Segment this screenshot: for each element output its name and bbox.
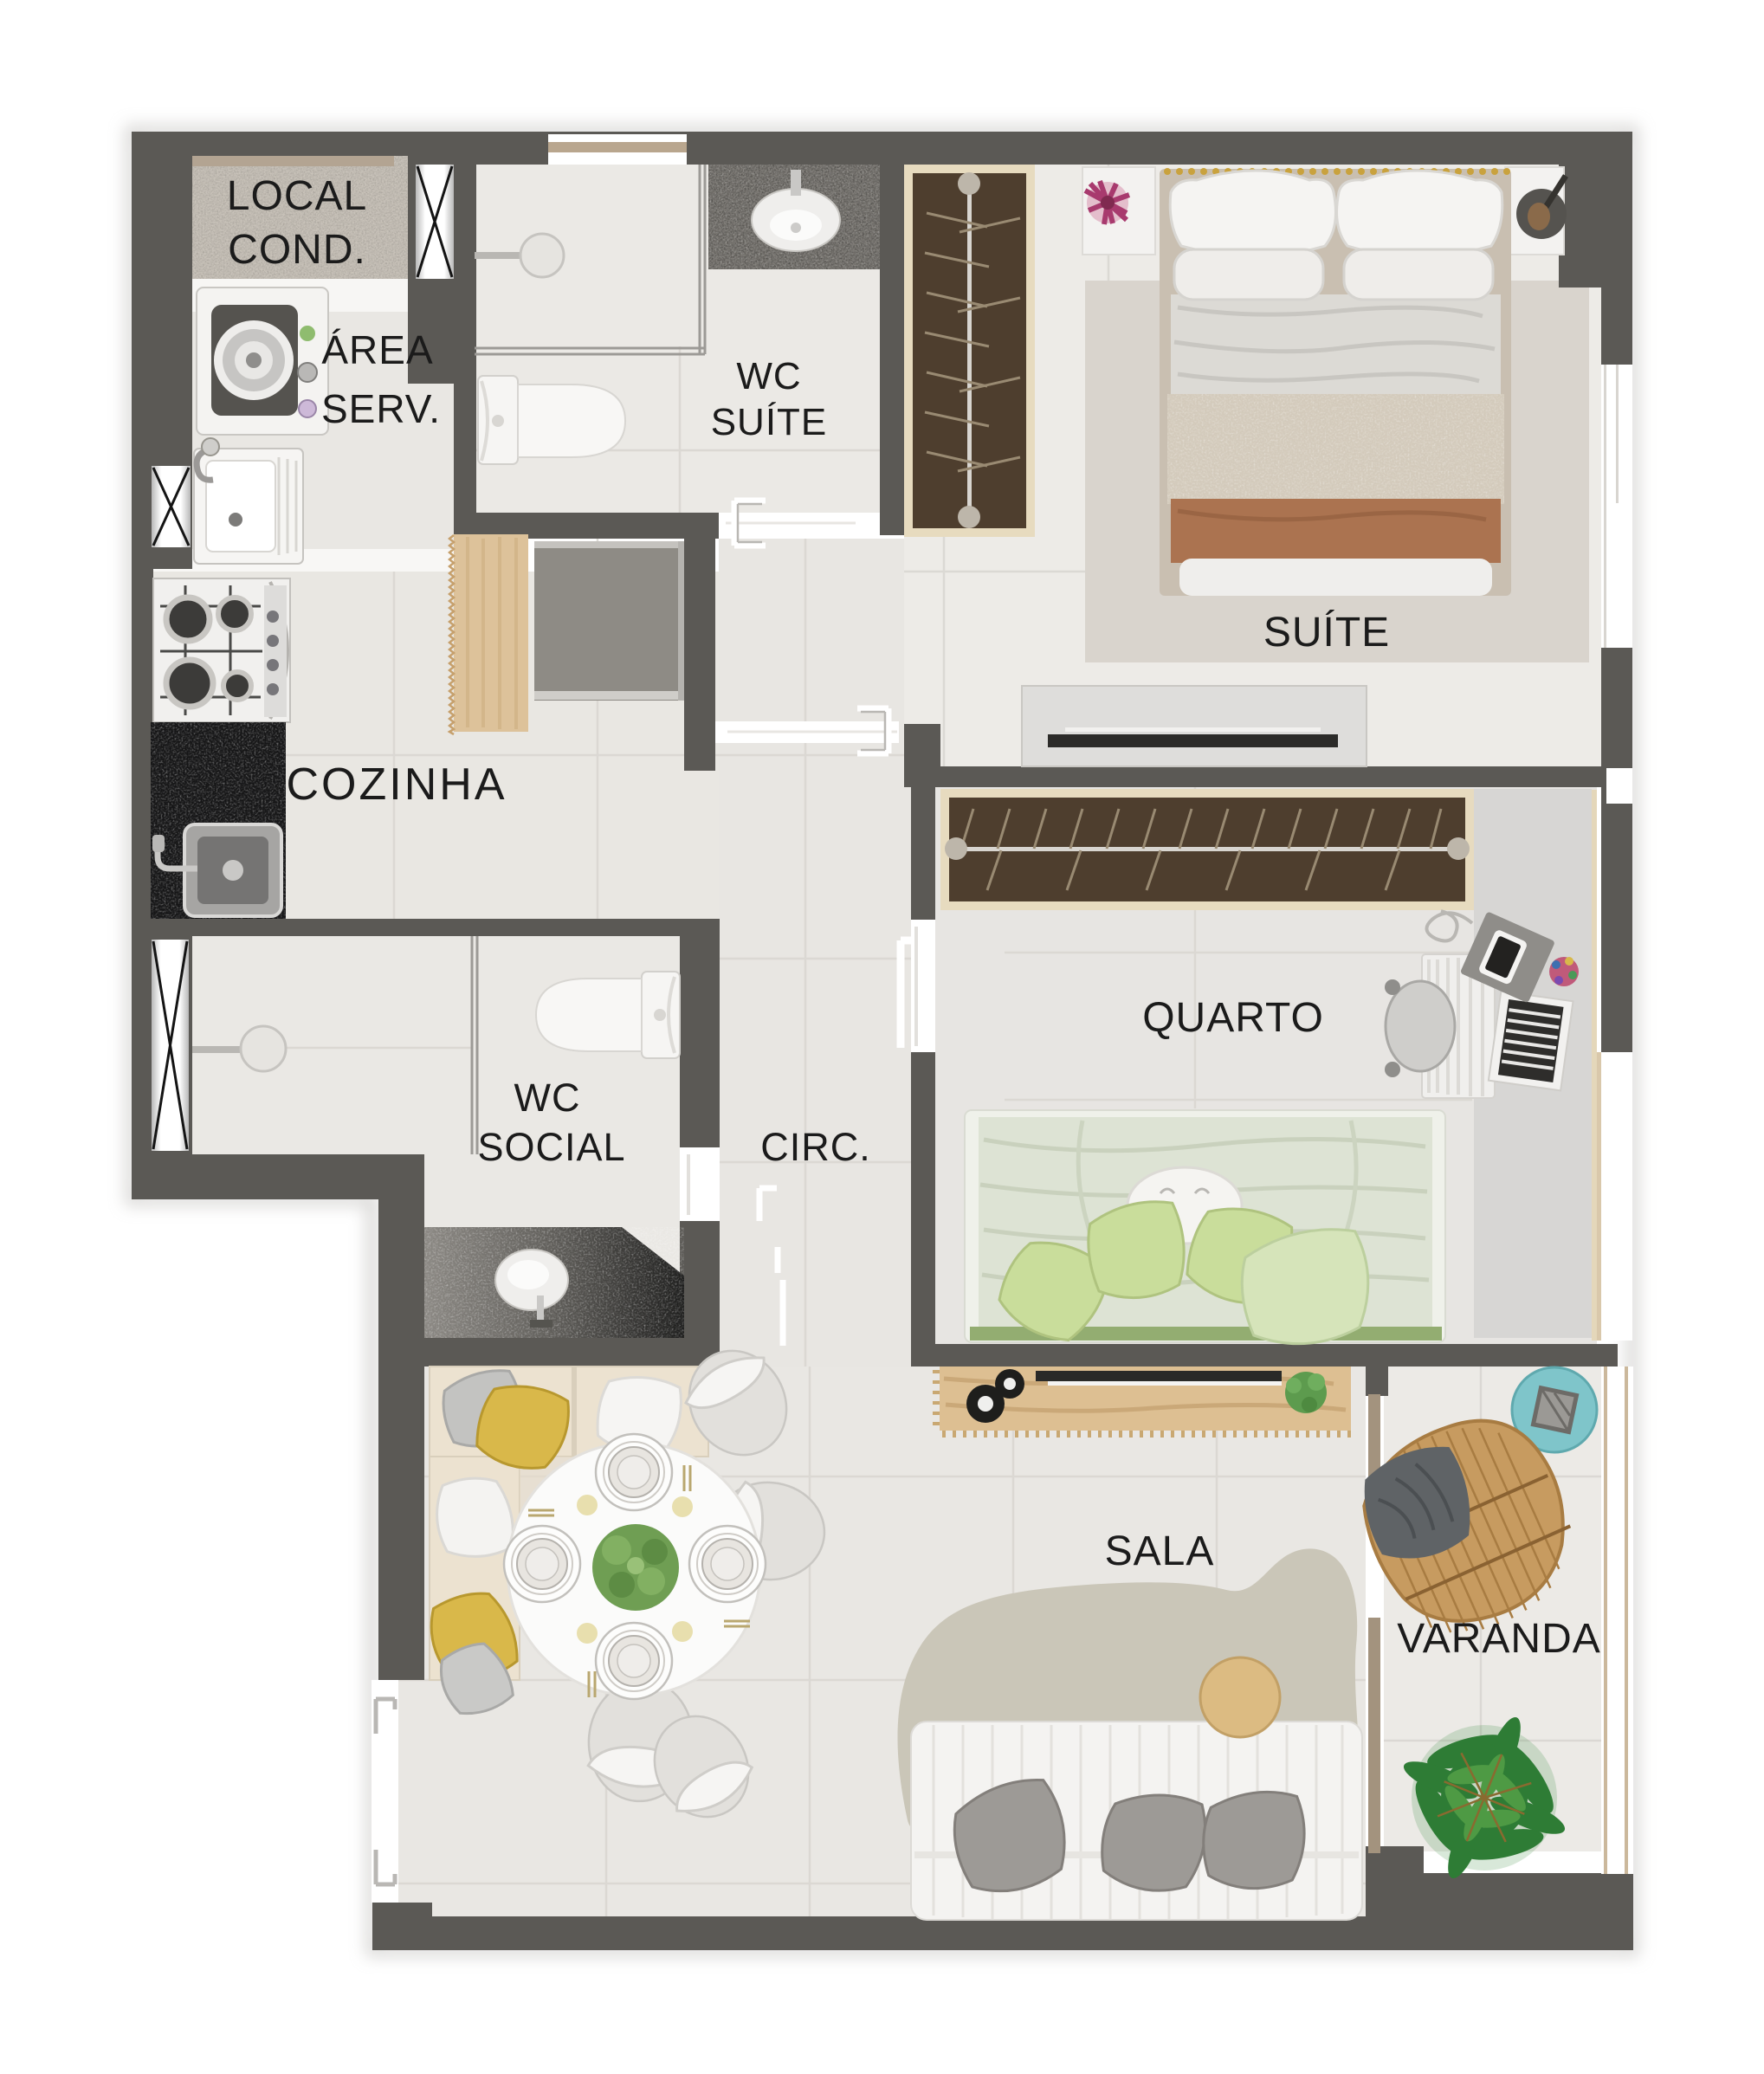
svg-text:LOCAL: LOCAL (227, 173, 367, 219)
svg-text:SOCIAL: SOCIAL (477, 1125, 625, 1169)
svg-text:COND.: COND. (228, 227, 366, 273)
svg-text:SUÍTE: SUÍTE (711, 401, 828, 443)
svg-text:SERV.: SERV. (321, 386, 441, 431)
svg-text:QUARTO: QUARTO (1142, 995, 1324, 1041)
svg-text:VARANDA: VARANDA (1397, 1616, 1601, 1662)
svg-text:SALA: SALA (1105, 1528, 1215, 1574)
svg-text:ÁREA: ÁREA (321, 327, 433, 372)
svg-text:CIRC.: CIRC. (760, 1125, 871, 1169)
svg-text:WC: WC (736, 355, 801, 397)
svg-text:WC: WC (514, 1076, 581, 1120)
svg-text:COZINHA: COZINHA (287, 759, 507, 810)
svg-text:SUÍTE: SUÍTE (1263, 610, 1390, 656)
